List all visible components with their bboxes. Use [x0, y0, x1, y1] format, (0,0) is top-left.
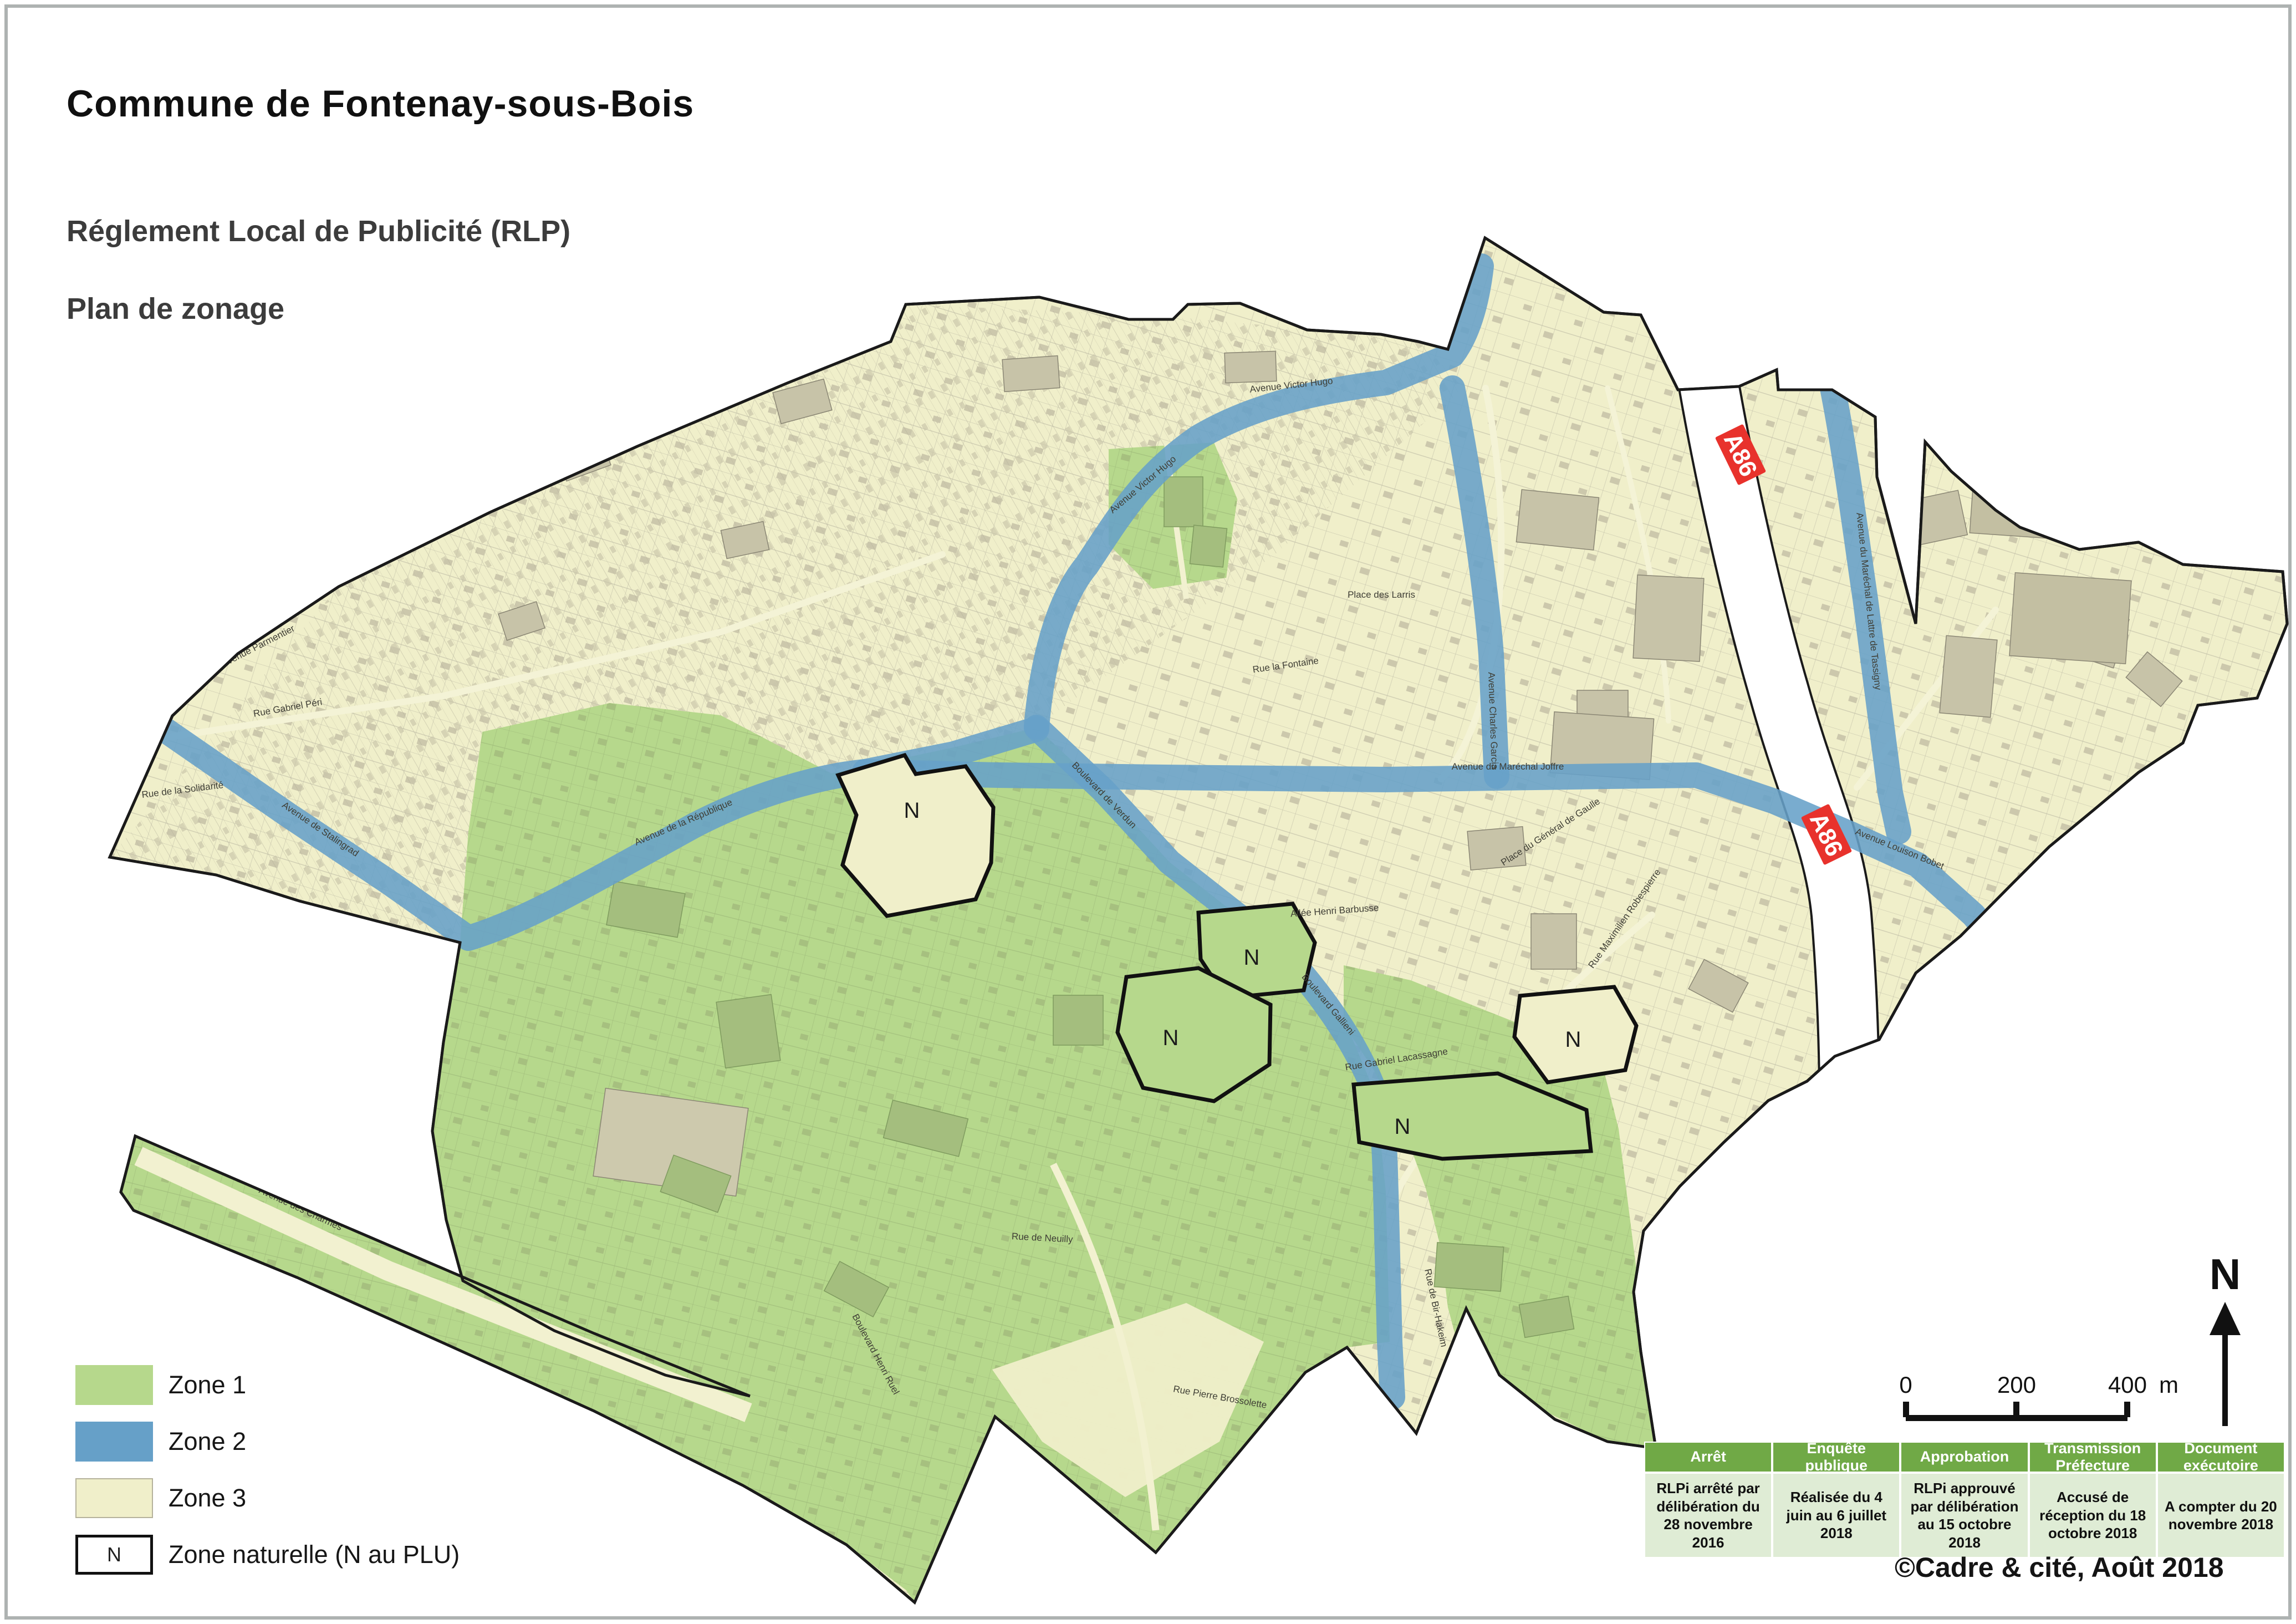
- plan-label: Plan de zonage: [67, 292, 284, 326]
- scale-bar: 0 200 400 m: [1899, 1372, 2178, 1421]
- north-arrow: N: [2210, 1250, 2241, 1426]
- table-cell-enquete: Réalisée du 4 juin au 6 juillet 2018: [1772, 1473, 1900, 1558]
- legend-label: Zone 2: [169, 1427, 246, 1456]
- approval-table: Arrêt Enquête publique Approbation Trans…: [1644, 1442, 2285, 1558]
- zone3-swatch: [75, 1478, 153, 1518]
- legend-item-zone-naturelle: N Zone naturelle (N au PLU): [75, 1535, 685, 1575]
- legend-label: Zone 1: [169, 1371, 246, 1399]
- zone-naturelle-swatch: N: [75, 1535, 153, 1575]
- table-header-approbation: Approbation: [1900, 1442, 2028, 1473]
- zone1-swatch: [75, 1365, 153, 1405]
- street-label: Place des Larris: [1348, 589, 1415, 600]
- table-cell-approbation: RLPi approuvé par délibération au 15 oct…: [1900, 1473, 2028, 1558]
- legend-label: Zone naturelle (N au PLU): [169, 1540, 460, 1569]
- table-cell-executoire: A compter du 20 novembre 2018: [2157, 1473, 2285, 1558]
- page-title: Commune de Fontenay-sous-Bois: [67, 82, 694, 125]
- table-header-executoire: Document exécutoire: [2157, 1442, 2285, 1473]
- table-header-arret: Arrêt: [1644, 1442, 1772, 1473]
- zone2-swatch: [75, 1422, 153, 1462]
- street-label: Avenue du Maréchal Joffre: [1452, 761, 1564, 772]
- n-zone-label: N: [1244, 945, 1260, 970]
- n-zone-label: N: [904, 798, 920, 823]
- legend-item-zone3: Zone 3: [75, 1478, 685, 1518]
- scale-tick-label: 0: [1899, 1372, 1912, 1398]
- legend: Zone 1 Zone 2 Zone 3 N Zone naturelle (N…: [75, 1365, 685, 1591]
- credit-line: ©Cadre & cité, Août 2018: [1895, 1551, 2224, 1584]
- north-label: N: [2210, 1250, 2241, 1299]
- table-cell-arret: RLPi arrêté par délibération du 28 novem…: [1644, 1473, 1772, 1558]
- n-zone-label: N: [1565, 1027, 1581, 1052]
- page-subtitle: Réglement Local de Publicité (RLP): [67, 214, 570, 248]
- scale-unit-label: m: [2159, 1372, 2178, 1398]
- legend-item-zone1: Zone 1: [75, 1365, 685, 1405]
- n-zone-label: N: [1395, 1114, 1411, 1139]
- n-zone-label: N: [1163, 1026, 1179, 1050]
- scale-tick-label: 400: [2108, 1372, 2147, 1398]
- table-header-transmission: Transmission Préfecture: [2029, 1442, 2157, 1473]
- table-cell-transmission: Accusé de réception du 18 octobre 2018: [2029, 1473, 2157, 1558]
- table-header-enquete: Enquête publique: [1772, 1442, 1900, 1473]
- legend-item-zone2: Zone 2: [75, 1422, 685, 1462]
- legend-label: Zone 3: [169, 1484, 246, 1513]
- scale-tick-label: 200: [1997, 1372, 2036, 1398]
- page: N N N N N A86 A86 Avenue Victor Hugo Ave…: [0, 0, 2296, 1624]
